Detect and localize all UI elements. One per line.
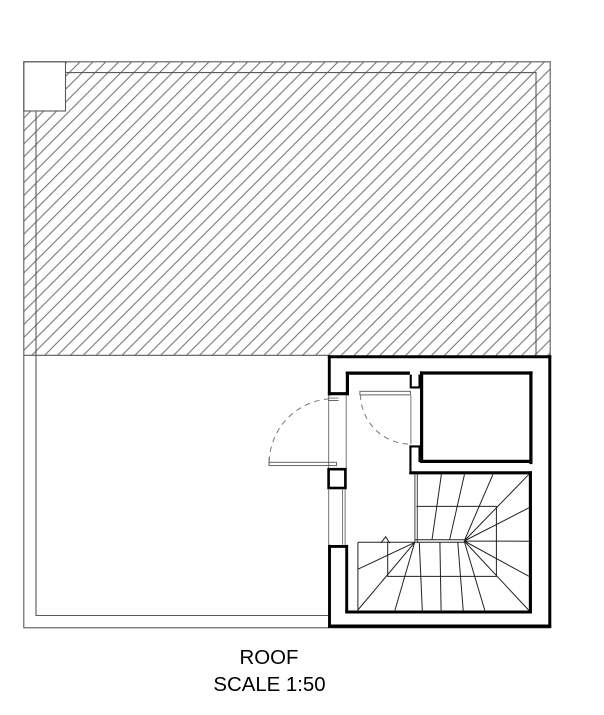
svg-text:SCALE 1:50: SCALE 1:50 <box>213 674 325 696</box>
svg-text:ROOF: ROOF <box>240 647 299 669</box>
